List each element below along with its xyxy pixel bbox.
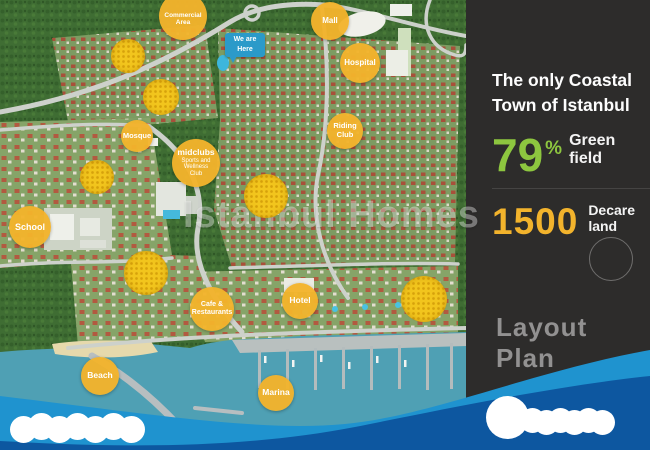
decare-land-label: Decare land	[588, 202, 650, 234]
highlight-scribble-circle	[124, 251, 168, 295]
panel-heading: The only Coastal Town of Istanbul	[492, 68, 632, 119]
highlight-scribble-circle	[80, 160, 114, 194]
poi-label: Commercial Area	[159, 12, 207, 27]
green-field-value: 79	[492, 136, 543, 175]
layout-plan-page: Istanbul Homes We are Here Commercial Ar…	[0, 0, 650, 450]
we-are-here-line1: We are	[234, 35, 257, 46]
info-panel: The only Coastal Town of Istanbul 79 % G…	[466, 0, 650, 450]
photo-watermark: Istanbul Homes	[183, 194, 480, 237]
logo-blob-left	[10, 413, 145, 440]
panel-divider	[492, 188, 650, 189]
green-field-label: Green field	[569, 132, 650, 168]
decare-land-value: 1500	[492, 206, 578, 237]
poi-marina: Marina	[258, 375, 294, 411]
green-field-stat: 79 % Green field	[492, 132, 650, 175]
heading-line1: The only Coastal	[492, 68, 632, 93]
poi-label: School	[15, 222, 45, 232]
logo-blob-right-pill	[520, 408, 615, 433]
poi-mall: Mall	[311, 2, 349, 40]
we-are-here-marker: We are Here	[225, 33, 265, 57]
decare-land-stat: 1500 Decare land	[492, 202, 650, 237]
poi-label: Mosque	[123, 132, 151, 141]
decor-ring	[589, 237, 633, 281]
poi-title: midclubs	[177, 148, 214, 158]
poi-label: Riding Club	[332, 122, 358, 139]
poi-label: Mall	[322, 16, 338, 25]
poi-label: Hospital	[344, 58, 376, 67]
poi-hotel: Hotel	[282, 283, 318, 319]
poi-hospital: Hospital	[340, 43, 380, 83]
poi-riding-club: Riding Club	[327, 113, 363, 149]
highlight-scribble-circle	[401, 276, 447, 322]
poi-label: Beach	[87, 371, 113, 381]
highlight-scribble-circle	[143, 79, 179, 115]
poi-cafe-restaurants: Cafe & Restaurants	[190, 287, 234, 331]
green-field-unit: %	[545, 138, 562, 160]
poi-school: School	[9, 206, 51, 248]
layout-plan-label: Layout Plan	[496, 312, 650, 374]
we-are-here-line2: Here	[237, 45, 253, 56]
poi-midclubs: midclubs Sports and Wellness Club	[172, 139, 220, 187]
poi-beach: Beach	[81, 357, 119, 395]
heading-line2: Town of Istanbul	[492, 93, 632, 118]
highlight-scribble-circle	[111, 39, 145, 73]
highlight-scribble-circle	[244, 174, 288, 218]
poi-label: Cafe & Restaurants	[192, 301, 232, 317]
poi-mosque: Mosque	[121, 120, 153, 152]
poi-label: Hotel	[289, 296, 310, 306]
poi-subtitle: Sports and Wellness Club	[172, 158, 220, 179]
poi-label: Marina	[262, 388, 289, 398]
